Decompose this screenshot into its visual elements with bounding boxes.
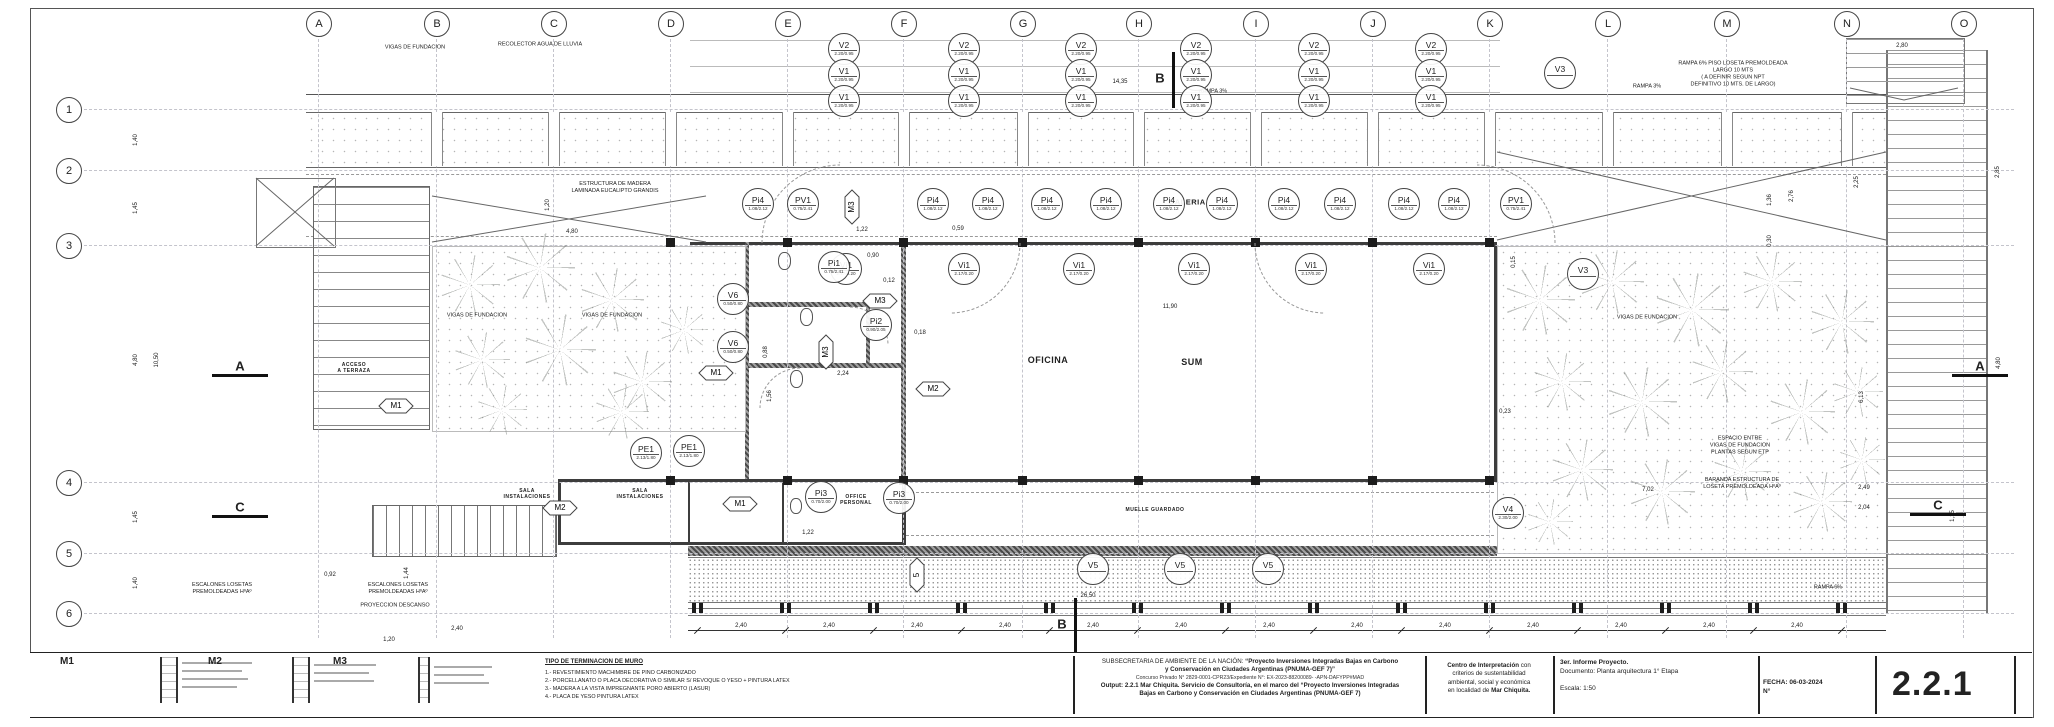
legend-item-3: 3.- MADERA A LA VISTA IMPREGNANTE PORO A… xyxy=(545,685,790,693)
tag-value: 2.20/0.95 xyxy=(1418,102,1444,109)
wall-finish-legend: TIPO DE TERMINACION DE MURO 1.- REVESTIM… xyxy=(545,658,790,702)
dimension-label: 4,80 xyxy=(566,229,578,235)
section-bar xyxy=(212,374,268,377)
report-title: 3er. Informe Proyecto. xyxy=(1560,659,1678,668)
legend-item-2: 2.- PORCELLANATO O PLACA DECORATIVA O SI… xyxy=(545,677,790,685)
svg-text:M1: M1 xyxy=(390,401,402,410)
annotation-line: VIGAS DE FUNDACION xyxy=(385,45,445,52)
tag-vi1: Vi12.17/0.20 xyxy=(1178,253,1210,285)
tag-v3: V3 xyxy=(1544,57,1576,89)
wall-detail-note xyxy=(434,666,492,668)
tag-label: Pi3 xyxy=(815,489,827,498)
annotation: VIGAS DE FUNDACION xyxy=(582,313,642,320)
wall-detail-note xyxy=(314,672,369,674)
dimension-label: 0,88 xyxy=(763,346,769,358)
wall-detail-note xyxy=(182,686,237,688)
tag-label: PE1 xyxy=(681,443,697,452)
room-label-sum: SUM xyxy=(1181,357,1203,367)
date-block: FECHA: 06-03-2024 N° xyxy=(1763,679,1823,697)
tag-value: 2.20/0.95 xyxy=(1068,102,1094,109)
tag-value: 2.30/2.00 xyxy=(1495,514,1521,521)
tag-label: Pi4 xyxy=(1216,196,1228,205)
finish-tag-m3: M3 xyxy=(818,334,834,375)
output-line2: Bajas en Carbono y Conservación en Ciuda… xyxy=(1078,690,1422,698)
tag-label: V1 xyxy=(1076,67,1086,76)
tag-value xyxy=(1570,276,1596,282)
tag-pe1: PE12.13/1.80 xyxy=(673,435,705,467)
tag-pi3: Pi30.70/2.00 xyxy=(883,482,915,514)
annotation-line: RAMPA 6% xyxy=(1814,585,1842,592)
tag-value: 2.20/0.95 xyxy=(1301,102,1327,109)
tag-v1: V12.20/0.95 xyxy=(1415,85,1447,117)
section-bar xyxy=(1172,52,1175,108)
wall-detail-note xyxy=(182,678,248,680)
annotation-line: ESCALONES LOSETAS xyxy=(192,582,252,589)
dimension-label: 1,20 xyxy=(545,199,551,211)
section-bar xyxy=(1074,598,1077,654)
annotation: ESCALONES LOSETASPREMOLDEADAS HºAº xyxy=(192,582,252,596)
tag-v1: V12.20/0.95 xyxy=(1065,85,1097,117)
grid-bubble-D: D xyxy=(658,11,684,37)
dimension-label-chain: 2,40 xyxy=(1527,623,1539,629)
tag-value: 2.20/0.95 xyxy=(831,50,857,57)
finish-tag-m3: M3 xyxy=(862,293,898,314)
wall-detail-m2-drawing xyxy=(292,657,310,703)
tag-v6: V60.50/0.80 xyxy=(717,283,749,315)
tag-value: 2.20/0.95 xyxy=(1068,76,1094,83)
annotation: RECOLECTOR AGUA DE LLUVIA xyxy=(498,42,582,49)
room-label-oficina: OFICINA xyxy=(1028,355,1069,365)
grid-bubble-C: C xyxy=(541,11,567,37)
tag-vi1: Vi12.17/0.20 xyxy=(1063,253,1095,285)
dimension-label: 0,15 xyxy=(1511,256,1517,268)
tag-label: V1 xyxy=(1309,67,1319,76)
annotation: VIGAS DE FUNDACION xyxy=(447,313,507,320)
tag-value: 1.08/2.12 xyxy=(1093,205,1119,212)
grid-bubble-F: F xyxy=(891,11,917,37)
tag-pi4: Pi41.08/2.12 xyxy=(1031,188,1063,220)
annotation: ESTRUCTURA DE MADERALAMINADA EUCALIPTO G… xyxy=(571,181,658,195)
annotation: VIGAS DE FUNDACION xyxy=(1617,315,1677,322)
annotation: ESPACIO ENTREVIGAS DE FUNDACIONPLANTAS S… xyxy=(1710,436,1770,457)
wall-detail-m3-drawing xyxy=(418,657,430,703)
tag-label: Vi1 xyxy=(1188,261,1200,270)
wall-detail-m1-drawing xyxy=(160,657,178,703)
dimension-label: 1,44 xyxy=(404,567,410,579)
dimension-label: 2,40 xyxy=(451,626,463,632)
tag-pi4: Pi41.08/2.12 xyxy=(1153,188,1185,220)
tag-label: V2 xyxy=(1076,41,1086,50)
dimension-label: 0,30 xyxy=(1767,235,1773,247)
section-marker-a: A xyxy=(1975,359,1984,374)
tag-value: 2.13/1.80 xyxy=(676,452,702,459)
centro-line4: en localidad de Mar Chiquita. xyxy=(1428,687,1550,695)
tag-value: 1.08/2.12 xyxy=(920,205,946,212)
dimension-label: 2,25 xyxy=(1854,176,1860,188)
tag-label: V1 xyxy=(1426,93,1436,102)
finish-tag-m1: M1 xyxy=(698,365,734,386)
scale-label: Escala: 1:50 xyxy=(1560,685,1678,694)
dimension-label: 0,12 xyxy=(883,278,895,284)
grid-bubble-G: G xyxy=(1010,11,1036,37)
tag-v5: V5 xyxy=(1077,553,1109,585)
room-label-sala: SALA INSTALACIONES xyxy=(617,488,664,500)
dimension-label-chain: 2,40 xyxy=(1615,623,1627,629)
tag-pi4: Pi41.08/2.12 xyxy=(1438,188,1470,220)
grid-bubble-K: K xyxy=(1477,11,1503,37)
annotation-line: VIGAS DE FUNDACION xyxy=(447,313,507,320)
grid-bubble-H: H xyxy=(1126,11,1152,37)
tag-value xyxy=(1255,571,1281,577)
grid-bubble-J: J xyxy=(1360,11,1386,37)
annotation-line: ESTRUCTURA DE MADERA xyxy=(571,181,658,188)
tag-pi4: Pi41.08/2.12 xyxy=(1388,188,1420,220)
tag-label: V1 xyxy=(839,67,849,76)
tag-value: 2.20/0.95 xyxy=(951,50,977,57)
dimension-label-chain: 2,40 xyxy=(1175,623,1187,629)
dimension-label: 14,35 xyxy=(1112,79,1127,85)
document-name: Documento: Planta arquitectura 1° Etapa xyxy=(1560,668,1678,677)
finish-tag-m2: M2 xyxy=(915,381,951,402)
tag-pi3: Pi30.70/2.00 xyxy=(805,481,837,513)
grid-bubble-M: M xyxy=(1714,11,1740,37)
grid-bubble-I: I xyxy=(1243,11,1269,37)
annotation: RAMPA 6% xyxy=(1814,585,1842,592)
tag-label: Pi4 xyxy=(982,196,994,205)
dimension-label: 2,85 xyxy=(1995,166,2001,178)
grid-bubble-A: A xyxy=(306,11,332,37)
tag-label: Vi1 xyxy=(1073,261,1085,270)
grid-bubble-2: 2 xyxy=(56,158,82,184)
tag-label: V4 xyxy=(1503,505,1513,514)
room-label-sala: SALA INSTALACIONES xyxy=(504,488,551,500)
grid-bubble-B: B xyxy=(424,11,450,37)
tag-value: 2.20/0.95 xyxy=(951,76,977,83)
tag-value: 1.08/2.12 xyxy=(1391,205,1417,212)
annotation-line: PLANTAS SEGUN ETP xyxy=(1710,449,1770,456)
section-marker-a: A xyxy=(235,359,244,374)
tag-value: 2.20/0.95 xyxy=(1418,76,1444,83)
tag-label: Pi1 xyxy=(828,259,840,268)
tag-value: 2.17/0.20 xyxy=(1181,270,1207,277)
tb-separator xyxy=(1425,656,1427,714)
svg-text:M3: M3 xyxy=(847,201,856,213)
tag-value: 0.70/2.00 xyxy=(886,499,912,506)
tag-label: Pi4 xyxy=(1334,196,1346,205)
dimension-label: 2,80 xyxy=(1896,43,1908,49)
annotation: RAMPA 3% xyxy=(1633,84,1661,91)
annotation-line: PREMOLDEADAS HºAº xyxy=(368,589,428,596)
tag-label: PV1 xyxy=(795,196,811,205)
annotation: BARANDA ESTRUCTURA DELOSETA PREMOLDEADA … xyxy=(1703,477,1781,491)
grid-bubble-1: 1 xyxy=(56,97,82,123)
tag-v4: V42.30/2.00 xyxy=(1492,497,1524,529)
section-marker-c: C xyxy=(235,500,244,515)
finish-tag-m1: M1 xyxy=(378,398,414,419)
tag-value: 2.17/0.20 xyxy=(1066,270,1092,277)
dimension-label: 0,18 xyxy=(914,330,926,336)
tag-value xyxy=(1080,571,1106,577)
dimension-label: 2,76 xyxy=(1789,190,1795,202)
dimension-label: 1,36 xyxy=(1767,194,1773,206)
tag-value: 2.13/1.80 xyxy=(633,454,659,461)
svg-text:M2: M2 xyxy=(554,503,566,512)
svg-text:M3: M3 xyxy=(821,346,830,358)
tag-v3: V3 xyxy=(1567,258,1599,290)
tag-label: V2 xyxy=(1191,41,1201,50)
tag-label: PV1 xyxy=(1508,196,1524,205)
tag-label: V1 xyxy=(1426,67,1436,76)
project-description-block: Centro de Interpretación con criterios d… xyxy=(1428,662,1550,695)
tag-v1: V12.20/0.95 xyxy=(1298,85,1330,117)
dimension-label-chain: 2,40 xyxy=(1351,623,1363,629)
tag-value: 0.70/2.00 xyxy=(808,498,834,505)
tag-value: 1.08/2.12 xyxy=(745,205,771,212)
tag-label: V6 xyxy=(728,291,738,300)
tag-pi4: Pi41.08/2.12 xyxy=(917,188,949,220)
tag-label: V1 xyxy=(1076,93,1086,102)
wall-detail-m3-label: M3 xyxy=(333,656,347,667)
tag-value: 0.75/2.41 xyxy=(1503,205,1529,212)
tag-label: V5 xyxy=(1088,561,1098,570)
tag-pi4: Pi41.08/2.12 xyxy=(972,188,1004,220)
section-marker-c: C xyxy=(1933,498,1942,513)
wall-detail-m2-label: M2 xyxy=(208,656,222,667)
tag-value xyxy=(1167,571,1193,577)
annotation-line: ( A DEFINIR SEGUN NPT xyxy=(1678,74,1787,81)
tag-label: Pi4 xyxy=(1100,196,1112,205)
section-bar xyxy=(212,515,268,518)
room-label-acceso: ACCESO A TERRAZA xyxy=(337,362,370,374)
dimension-label: 26,50 xyxy=(1080,593,1095,599)
tag-label: V3 xyxy=(1578,266,1588,275)
wall-detail-note xyxy=(182,670,242,672)
finish-tag-5: 5 xyxy=(909,557,925,598)
tag-label: V1 xyxy=(839,93,849,102)
tag-value: 2.20/0.95 xyxy=(1418,50,1444,57)
annotation-line: DEFINITIVO 10 MTS. DE LARGO) xyxy=(1678,81,1787,88)
tag-label: V1 xyxy=(1191,67,1201,76)
tag-v1: V12.20/0.95 xyxy=(948,85,980,117)
title-block: M1 M2 M3 TIPO DE TERMINACION DE MURO 1.-… xyxy=(30,652,2032,718)
wall-detail-note xyxy=(434,682,489,684)
tag-value: 0.75/2.41 xyxy=(790,205,816,212)
dimension-label: 1,56 xyxy=(767,390,773,402)
tag-v5: V5 xyxy=(1164,553,1196,585)
tag-label: V1 xyxy=(1309,93,1319,102)
tb-separator xyxy=(1073,656,1075,714)
output-line1: Output: 2.2.1 Mar Chiquita. Servicio de … xyxy=(1078,682,1422,690)
annotation-line: RAMPA 3% xyxy=(1633,84,1661,91)
annotation-line: VIGAS DE FUNDACION xyxy=(1710,443,1770,450)
project-title-block: SUBSECRETARIA DE AMBIENTE DE LA NACIÓN: … xyxy=(1078,658,1422,698)
tag-label: V6 xyxy=(728,339,738,348)
number-label: N° xyxy=(1763,688,1823,697)
finish-tag-m1: M1 xyxy=(722,496,758,517)
tag-value: 2.20/0.95 xyxy=(1068,50,1094,57)
dimension-label: 2,24 xyxy=(837,371,849,377)
grid-bubble-O: O xyxy=(1951,11,1977,37)
tag-label: V2 xyxy=(1426,41,1436,50)
svg-text:M2: M2 xyxy=(927,384,939,393)
tag-v5: V5 xyxy=(1252,553,1284,585)
tag-pi4: Pi41.08/2.12 xyxy=(1324,188,1356,220)
tag-label: V5 xyxy=(1263,561,1273,570)
tag-label: Pi4 xyxy=(1041,196,1053,205)
annotation-line: PREMOLDEADAS HºAº xyxy=(192,589,252,596)
dimension-label: 1,20 xyxy=(383,637,395,643)
tag-value: 1.08/2.12 xyxy=(1034,205,1060,212)
tag-pv1: PV10.75/2.41 xyxy=(1500,188,1532,220)
annotation-line: BARANDA ESTRUCTURA DE xyxy=(1703,477,1781,484)
report-block: 3er. Informe Proyecto. Documento: Planta… xyxy=(1560,659,1678,693)
tag-value: 1.08/2.12 xyxy=(1441,205,1467,212)
grid-bubble-E: E xyxy=(775,11,801,37)
tag-label: Pi4 xyxy=(1163,196,1175,205)
tag-label: Pi4 xyxy=(927,196,939,205)
centro-line3: ambiental, social y económica xyxy=(1428,679,1550,687)
annotation-line: LARGO 10 MTS xyxy=(1678,67,1787,74)
tag-value: 2.20/0.95 xyxy=(1183,50,1209,57)
dimension-label: 10,50 xyxy=(154,352,160,367)
wall-detail-note xyxy=(314,680,374,682)
section-bar xyxy=(1910,513,1966,516)
room-label-muelle-guardado: MUELLE GUARDADO xyxy=(1126,507,1185,513)
tag-label: V1 xyxy=(959,67,969,76)
svg-text:5: 5 xyxy=(912,572,921,577)
tag-label: Pi3 xyxy=(893,490,905,499)
tag-v6: V60.50/0.80 xyxy=(717,331,749,363)
dimension-label: 1,22 xyxy=(802,530,814,536)
tag-pe1: PE12.13/1.80 xyxy=(630,437,662,469)
tag-v1: V12.20/0.95 xyxy=(828,85,860,117)
dimension-label: 0,59 xyxy=(952,226,964,232)
annotation: VIGAS DE FUNDACION xyxy=(385,45,445,52)
svg-text:M1: M1 xyxy=(710,368,722,377)
dimension-label-chain: 2,40 xyxy=(823,623,835,629)
svg-text:M1: M1 xyxy=(734,499,746,508)
legend-item-4: 4.- PLACA DE YESO PINTURA LATEX xyxy=(545,693,790,701)
dimension-label: 7,02 xyxy=(1642,487,1654,493)
annotation-line: LOSETA PREMOLDEADA HºAº xyxy=(1703,484,1781,491)
tag-value xyxy=(1547,75,1573,81)
dimension-label: 2,04 xyxy=(1858,505,1870,511)
dimension-label: 0,92 xyxy=(324,572,336,578)
room-label-office: OFFICE PERSONAL xyxy=(840,494,872,506)
tag-value: 2.20/0.95 xyxy=(831,76,857,83)
tag-label: V5 xyxy=(1175,561,1185,570)
tag-value: 2.17/0.20 xyxy=(951,270,977,277)
tag-value: 2.20/0.95 xyxy=(1301,50,1327,57)
tag-value: 2.20/0.95 xyxy=(951,102,977,109)
tag-value: 1.08/2.12 xyxy=(1271,205,1297,212)
tag-pi4: Pi41.08/2.12 xyxy=(742,188,774,220)
centro-line1: Centro de Interpretación con xyxy=(1428,662,1550,670)
dimension-label-chain: 2,40 xyxy=(999,623,1011,629)
tag-value: 1.08/2.12 xyxy=(975,205,1001,212)
tag-value: 0.50/0.80 xyxy=(720,300,746,307)
annotation-line: VIGAS DE FUNDACION xyxy=(582,313,642,320)
annotation-line: RAMPA 6% PISO LOSETA PREMOLDEADA xyxy=(1678,60,1787,67)
annotation-line: VIGAS DE FUNDACION xyxy=(1617,315,1677,322)
tag-value: 0.75/2.41 xyxy=(821,268,847,275)
dimension-label: 6,13 xyxy=(1859,391,1865,403)
date-label: FECHA: 06-03-2024 xyxy=(1763,679,1823,688)
dimension-label: 2,49 xyxy=(1858,485,1870,491)
concurso-line: Concurso Privado N° 2829-0001-CPR23/Expe… xyxy=(1078,675,1422,682)
centro-line2: criterios de sustentabilidad xyxy=(1428,670,1550,678)
dimension-label-chain: 2,40 xyxy=(735,623,747,629)
tag-value: 1.08/2.12 xyxy=(1327,205,1353,212)
drawing-sheet: M1 M2 M3 TIPO DE TERMINACION DE MURO 1.-… xyxy=(0,0,2054,727)
org-line: SUBSECRETARIA DE AMBIENTE DE LA NACIÓN: … xyxy=(1078,658,1422,666)
dimension-label: 4,80 xyxy=(133,354,139,366)
section-bar xyxy=(1952,374,2008,377)
dimension-label: 0,23 xyxy=(1499,409,1511,415)
tag-label: Pi2 xyxy=(870,317,882,326)
tag-label: V3 xyxy=(1555,65,1565,74)
annotation: ESCALONES LOSETASPREMOLDEADAS HºAº xyxy=(368,582,428,596)
tag-v1: V12.20/0.95 xyxy=(1180,85,1212,117)
tag-value: 2.20/0.95 xyxy=(1301,76,1327,83)
tag-label: Vi1 xyxy=(958,261,970,270)
tag-value: 0.90/2.05 xyxy=(863,326,889,333)
section-marker-b: B xyxy=(1155,71,1164,86)
tag-pi4: Pi41.08/2.12 xyxy=(1268,188,1300,220)
tb-separator xyxy=(1553,656,1555,714)
annotation: PROYECCION DESCANSO xyxy=(360,603,429,610)
grid-bubble-L: L xyxy=(1595,11,1621,37)
legend-item-1: 1.- REVESTIMIENTO MACHIMBRE DE PINO CARB… xyxy=(545,669,790,677)
tag-label: PE1 xyxy=(638,445,654,454)
dimension-label: 0,90 xyxy=(867,253,879,259)
dimension-label: 1,45 xyxy=(133,202,139,214)
grid-bubble-4: 4 xyxy=(56,470,82,496)
dimension-label: 11,90 xyxy=(1163,304,1178,310)
tag-label: V1 xyxy=(1191,93,1201,102)
dimension-label: 4,80 xyxy=(1996,357,2002,369)
annotation-line: ESPACIO ENTRE xyxy=(1710,436,1770,443)
dimension-label-chain: 2,40 xyxy=(1703,623,1715,629)
dimension-label: 1,40 xyxy=(133,577,139,589)
svg-text:M3: M3 xyxy=(874,296,886,305)
dimension-label: 1,45 xyxy=(133,511,139,523)
tag-value: 2.20/0.95 xyxy=(1183,76,1209,83)
finish-tag-m2: M2 xyxy=(542,500,578,521)
tag-vi1: Vi12.17/0.20 xyxy=(1413,253,1445,285)
section-marker-b: B xyxy=(1057,617,1066,632)
dimension-label-chain: 2,40 xyxy=(1087,623,1099,629)
tag-pv1: PV10.75/2.41 xyxy=(787,188,819,220)
tb-separator xyxy=(2014,656,2016,714)
tag-value: 2.17/0.20 xyxy=(1298,270,1324,277)
tag-pi4: Pi41.08/2.12 xyxy=(1206,188,1238,220)
tag-value: 2.17/0.20 xyxy=(1416,270,1442,277)
dimension-label-chain: 2,40 xyxy=(1439,623,1451,629)
tag-label: Pi4 xyxy=(1278,196,1290,205)
tag-label: V1 xyxy=(959,93,969,102)
wall-detail-m1-label: M1 xyxy=(60,656,74,667)
tag-label: Pi4 xyxy=(1448,196,1460,205)
annotation-line: LAMINADA EUCALIPTO GRANDIS xyxy=(571,188,658,195)
sheet-number: 2.2.1 xyxy=(1892,665,1973,704)
org-line2: y Conservación en Ciudades Argentinas (P… xyxy=(1078,666,1422,674)
tag-label: Vi1 xyxy=(1423,261,1435,270)
wall-detail-note xyxy=(434,674,484,676)
tb-separator xyxy=(1758,656,1760,714)
tag-label: V2 xyxy=(959,41,969,50)
legend-title: TIPO DE TERMINACION DE MURO xyxy=(545,658,790,666)
